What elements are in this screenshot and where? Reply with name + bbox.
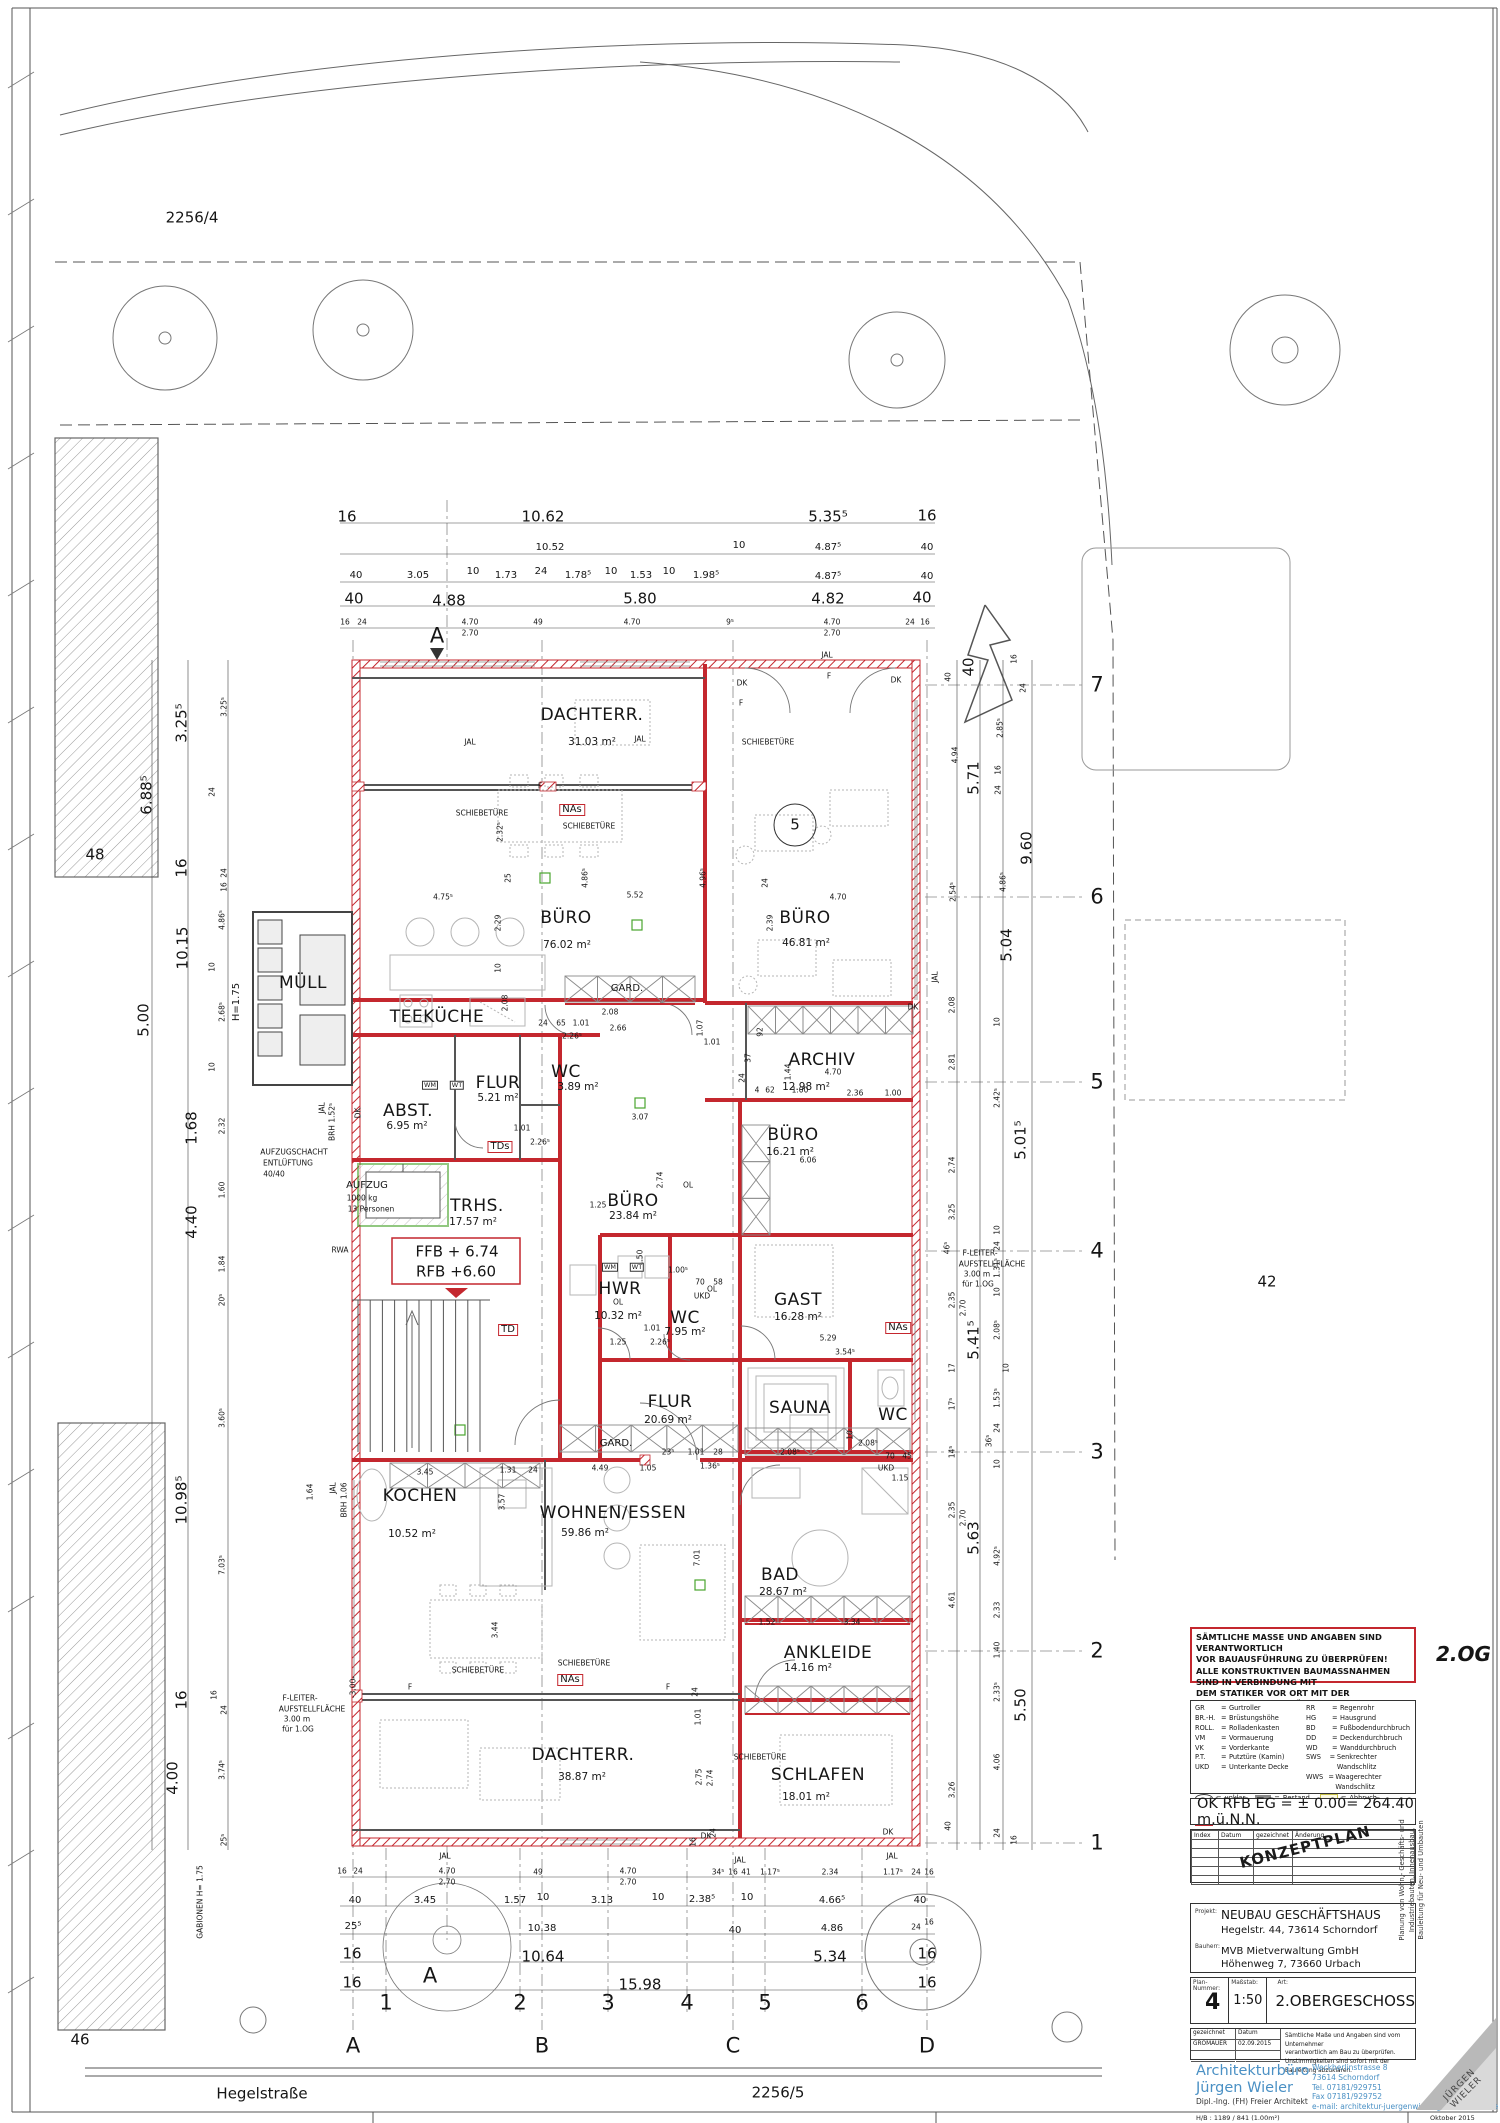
- room-name: SAUNA: [769, 1398, 831, 1418]
- dimension-label: 1.01: [694, 1709, 702, 1726]
- dimension-label: 2.08: [948, 997, 956, 1014]
- dimension-label: 10: [993, 1017, 1001, 1027]
- dimension-label: 40: [344, 592, 363, 607]
- dimension-label: 3.60⁵: [218, 1408, 226, 1428]
- component-tag: F: [739, 699, 743, 707]
- grid-number: 5: [758, 1993, 771, 2014]
- dimension-label: 4.06: [993, 1754, 1001, 1771]
- room-name: BÜRO: [767, 1125, 818, 1145]
- legend-value: Wanddurchbruch: [1340, 1744, 1396, 1754]
- room-area: 12.98 m²: [782, 1081, 830, 1093]
- legend-key: WWS: [1306, 1773, 1328, 1793]
- dimension-label: 10: [652, 1893, 665, 1903]
- dimension-label: 1.00: [885, 1089, 902, 1097]
- legend-key: GR: [1195, 1704, 1221, 1714]
- plan-annotation: GARD.: [611, 984, 643, 994]
- room-area: 59.86 m²: [561, 1527, 609, 1539]
- dimension-label: 2.75: [695, 1769, 703, 1786]
- dimension-label: 4.70: [620, 1867, 637, 1875]
- plan-annotation: TDs: [487, 1141, 512, 1153]
- project-box: Projekt: NEUBAU GESCHÄFTSHAUS Hegelstr. …: [1190, 1903, 1416, 1973]
- dimension-label: 70: [885, 1452, 895, 1460]
- legend-box: GR=GurtrollerBR.-H.=BrüstungshöheROLL.=R…: [1190, 1700, 1416, 1794]
- dimension-label: 5.00: [137, 1003, 152, 1036]
- dimension-label: 24: [220, 868, 228, 878]
- grid-number: 3: [1090, 1442, 1103, 1463]
- client-name: MVB Mietverwaltung GmbH: [1221, 1945, 1409, 1958]
- dimension-label: 3.74⁵: [218, 1760, 226, 1780]
- dimension-label: 16: [342, 1947, 361, 1962]
- dimension-label: 16: [917, 1947, 936, 1962]
- plan-number: 4: [1205, 1990, 1220, 2015]
- dimension-label: 4.00: [166, 1761, 181, 1794]
- revision-header: Index: [1192, 1831, 1219, 1840]
- plan-annotation: A: [430, 626, 444, 647]
- room-name: MÜLL: [279, 973, 327, 993]
- dimension-label: 2.08⁵: [858, 1439, 878, 1447]
- dimension-label: 3.34: [844, 1618, 861, 1626]
- drawn-note: verantwortlich am Bau zu überprüfen.: [1285, 2049, 1411, 2058]
- dimension-label: 4.70: [830, 893, 847, 901]
- dimension-label: 24: [691, 1687, 699, 1697]
- dimension-label: 10.38: [528, 1924, 557, 1934]
- component-tag: JAL: [886, 1852, 897, 1860]
- legend-key: RR: [1306, 1704, 1332, 1714]
- dimension-label: 10.98⁵: [175, 1476, 190, 1525]
- room-area: 14.16 m²: [784, 1662, 832, 1674]
- type-label: Art:: [1277, 1980, 1288, 1986]
- legend-key: HG: [1306, 1714, 1332, 1724]
- room-name: WC: [551, 1062, 581, 1082]
- dimension-label: 2.35: [948, 1292, 956, 1309]
- dimension-label: 2.85⁵: [996, 718, 1004, 738]
- project-name: NEUBAU GESCHÄFTSHAUS: [1221, 1908, 1409, 1924]
- dimension-label: 41: [741, 1868, 751, 1876]
- dimension-label: 1.25: [610, 1338, 627, 1346]
- dimension-label: 49: [533, 618, 543, 626]
- component-tag: DK: [883, 1828, 894, 1836]
- plan-annotation: RFB +6.60: [416, 1265, 496, 1280]
- dimension-label: 4.88: [432, 594, 465, 609]
- dimension-label: UKD: [694, 1292, 710, 1300]
- legend-key: DD: [1306, 1734, 1332, 1744]
- dimension-label: 9⁵: [726, 618, 734, 626]
- muell-annex: [253, 912, 352, 1085]
- dimension-label: 24: [993, 1423, 1001, 1433]
- grid-number: 6: [1090, 887, 1103, 908]
- dimension-label: 24: [528, 1466, 538, 1474]
- dimension-label: 1.60: [218, 1182, 226, 1199]
- dimension-label: 24: [911, 1923, 921, 1931]
- project-label: Projekt:: [1195, 1909, 1217, 1917]
- drawn-note: Sämtliche Maße und Angaben sind vom Unte…: [1285, 2032, 1411, 2049]
- dimension-label: 2.74: [706, 1770, 714, 1787]
- component-tag: F: [538, 782, 542, 790]
- drawn-box: gezeichnet GROMAUER Datum 02.09.2015 Säm…: [1190, 2028, 1416, 2060]
- dimension-label: 2.08: [602, 1008, 619, 1016]
- dimension-label: 16: [689, 1837, 697, 1847]
- room-name: FLUR: [648, 1392, 693, 1412]
- dimension-label: 16: [994, 765, 1002, 775]
- dimension-label: 10.62: [522, 510, 565, 525]
- dimension-label: 2.81: [948, 1054, 956, 1071]
- room-area: 46.81 m²: [782, 937, 830, 949]
- dimension-label: 3.05: [407, 571, 429, 581]
- dimension-label: 1.68: [185, 1111, 200, 1144]
- dimension-label: 24: [738, 1073, 746, 1083]
- dimension-label: 40: [921, 543, 934, 553]
- plan-annotation: SCHIEBETÜRE: [563, 822, 616, 830]
- dimension-label: 5.04: [1000, 928, 1015, 961]
- dimension-label: 24: [353, 1867, 363, 1875]
- door-arcs: [455, 668, 895, 1700]
- plan-annotation: SCHIEBETÜRE: [456, 809, 509, 817]
- dimension-label: 4.96⁵: [699, 868, 707, 888]
- dimension-label: 16: [1010, 1835, 1018, 1845]
- plan-annotation: A: [423, 1966, 437, 1987]
- dimension-label: 10.64: [522, 1950, 565, 1965]
- dimension-label: 4.70: [824, 618, 841, 626]
- component-tag: WT: [630, 1263, 644, 1272]
- legend-key: VK: [1195, 1744, 1221, 1754]
- notice-line: SÄMTLICHE MASSE UND ANGABEN SIND VERANTW…: [1196, 1632, 1410, 1654]
- dimension-label: 2.36: [847, 1089, 864, 1097]
- dimension-label: 40: [912, 591, 931, 606]
- room-name: ANKLEIDE: [784, 1643, 873, 1663]
- legend-key: SWS: [1306, 1753, 1330, 1773]
- legend-value: Fußbodendurchbruch: [1340, 1724, 1410, 1734]
- dimension-label: 5.71: [967, 761, 982, 794]
- plan-annotation: AUFSTELLFLÄCHE: [279, 1705, 346, 1713]
- plan-annotation: für 1.OG: [962, 1280, 994, 1288]
- dimension-label: 4.66⁵: [819, 1896, 845, 1906]
- dimension-label: OL: [707, 1285, 717, 1293]
- dimension-label: 24: [911, 1868, 921, 1876]
- room-name: ARCHIV: [789, 1050, 856, 1070]
- plan-annotation: F-LEITER-: [282, 1694, 317, 1702]
- floor-plan-sheet: 1610.625.35⁵1610.52104.87⁵40403.05101.73…: [0, 0, 1500, 2123]
- dimension-label: 10: [733, 541, 746, 551]
- dimension-label: UKD: [878, 1464, 894, 1472]
- dimension-label: 1.53⁵: [993, 1388, 1001, 1408]
- dimension-label: 5.29: [820, 1334, 837, 1342]
- dimension-label: 3.45: [414, 1896, 436, 1906]
- dimension-label: 3.25⁵: [175, 703, 190, 742]
- component-tag: DK: [354, 1108, 362, 1119]
- dimension-label: 2.74: [656, 1172, 664, 1189]
- room-area: 7.95 m²: [664, 1326, 705, 1338]
- dimension-label: 2.34: [822, 1868, 839, 1876]
- dimension-label: 1.17⁵: [760, 1868, 780, 1876]
- dimension-label: 3.07: [632, 1113, 649, 1121]
- dimension-label: 2.66: [610, 1024, 627, 1032]
- legend-key: UKD: [1195, 1763, 1221, 1773]
- plan-annotation: ENTLÜFTUNG: [263, 1159, 313, 1167]
- grid-number: 4: [680, 1993, 693, 2014]
- legend-value: Waagerechter Wandschlitz: [1335, 1773, 1411, 1793]
- dimension-label: 4.61: [948, 1592, 956, 1609]
- plan-meta-box: Plan-Nummer: 4 Maßstab: 1:50 Art: 2.OBER…: [1190, 1977, 1416, 2024]
- dimension-label: 3.44: [491, 1622, 499, 1639]
- dimension-label: 1.98⁵: [693, 571, 719, 581]
- dimension-label: 40: [350, 571, 363, 581]
- legend-value: Senkrechter Wandschlitz: [1337, 1753, 1411, 1773]
- grid-letter: C: [726, 2036, 741, 2057]
- room-name: TEEKÜCHE: [390, 1007, 484, 1027]
- dimension-label: 5.80: [623, 592, 656, 607]
- plan-annotation: 48: [85, 848, 104, 863]
- component-tag: WT: [450, 1081, 464, 1090]
- plan-annotation: GABIONEN H= 1.75: [196, 1865, 204, 1939]
- dimension-label: 2.08: [501, 995, 509, 1012]
- legend-value: Brüstungshöhe: [1229, 1714, 1279, 1724]
- component-tag: JAL: [464, 738, 475, 746]
- dimension-label: 40: [944, 1821, 952, 1831]
- grid-letter: D: [919, 2036, 935, 2057]
- grid-number: 6: [855, 1993, 868, 2014]
- grid-letter: B: [535, 2036, 549, 2057]
- plan-annotation: AUFZUG: [346, 1181, 388, 1191]
- dimension-label: 1.01: [514, 1124, 531, 1132]
- dimension-label: 2.32⁵: [496, 822, 504, 842]
- room-area: 38.87 m²: [558, 1771, 606, 1783]
- stairs: [352, 1300, 490, 1452]
- plan-annotation: 3.00 m: [284, 1715, 310, 1723]
- dimension-label: 16: [210, 1690, 218, 1700]
- dimension-label: 45: [902, 1452, 912, 1460]
- office-services-line: Industriebauten, Innenausbau,: [1408, 1805, 1418, 1955]
- dimension-label: 40: [944, 672, 952, 682]
- project-address: Hegelstr. 44, 73614 Schorndorf: [1221, 1924, 1409, 1937]
- room-name: KOCHEN: [383, 1486, 458, 1506]
- dimension-label: 2.42⁵: [993, 1088, 1001, 1108]
- plan-annotation: TD: [498, 1324, 518, 1336]
- format-note: H/B : 1189 / 841 (1.00m²): [1196, 2114, 1280, 2122]
- dimension-label: 4: [755, 1086, 760, 1094]
- dimension-label: 1.07: [696, 1020, 704, 1037]
- component-tag: JAL: [931, 971, 939, 982]
- dimension-label: 16: [920, 618, 930, 626]
- component-tag: WM: [602, 1263, 618, 1272]
- dimension-label: 24: [905, 618, 915, 626]
- room-area: 10.52 m²: [388, 1528, 436, 1540]
- dimension-label: 17⁵: [948, 1398, 956, 1411]
- dimension-label: 16: [728, 1868, 738, 1876]
- revision-header: gezeichnet: [1254, 1831, 1293, 1840]
- component-tag: DK: [891, 676, 902, 684]
- dimension-label: 16: [340, 618, 350, 626]
- dimension-label: 4.70: [624, 618, 641, 626]
- client-address: Höhenweg 7, 73660 Urbach: [1221, 1958, 1409, 1971]
- plan-annotation: AUFSTELLFLÄCHE: [959, 1260, 1026, 1268]
- dimension-label: 9.60: [1020, 831, 1035, 864]
- plan-annotation: GARD.: [600, 1439, 632, 1449]
- dimension-label: 1.17⁵: [883, 1868, 903, 1876]
- plan-annotation: 40/40: [263, 1170, 285, 1178]
- room-name: BAD: [761, 1565, 799, 1585]
- room-area: 18.01 m²: [782, 1791, 830, 1803]
- dimension-label: 4.70: [439, 1867, 456, 1875]
- dimension-label: 10.15: [176, 927, 191, 970]
- room-name: HWR: [599, 1279, 642, 1299]
- dimension-label: 10: [993, 1225, 1001, 1235]
- dimension-label: 16: [1010, 654, 1018, 664]
- legend-key: ROLL.: [1195, 1724, 1221, 1734]
- legend-key: BD: [1306, 1724, 1332, 1734]
- room-name: TRHS.: [450, 1196, 504, 1216]
- dimension-label: 16: [342, 1976, 361, 1991]
- plan-annotation: Hegelstraße: [216, 2087, 307, 2102]
- dimension-label: OL: [683, 1181, 693, 1189]
- component-tag: WM: [422, 1081, 438, 1090]
- component-tag: JAL: [439, 1852, 450, 1860]
- dimension-label: 1.31: [500, 1466, 517, 1474]
- legend-value: Hausgrund: [1340, 1714, 1376, 1724]
- room-area: 3.89 m²: [557, 1081, 598, 1093]
- dimension-label: 2.26⁵: [530, 1138, 550, 1146]
- dimension-label: 2.32: [218, 1118, 226, 1135]
- dimension-label: 24: [761, 878, 769, 888]
- drawn-by: GROMAUER: [1191, 2040, 1235, 2051]
- dimension-label: 5.35⁵: [808, 510, 847, 525]
- grid-number: 1: [379, 1993, 392, 2014]
- plan-annotation: NAs: [885, 1322, 911, 1334]
- dimension-label: 3.26: [948, 1782, 956, 1799]
- scale-label: Maßstab:: [1231, 1980, 1258, 1986]
- dimension-label: 2.39: [766, 915, 774, 932]
- plan-annotation: 13 Personen: [348, 1205, 395, 1213]
- dimension-label: 24: [220, 1705, 228, 1715]
- plan-annotation: RWA: [331, 1246, 348, 1254]
- dimension-label: 1.25: [590, 1201, 607, 1209]
- dimension-label: 10: [208, 962, 216, 972]
- room-name: DACHTERR.: [541, 705, 644, 725]
- office-services-line: Bauleitung für Neu- und Umbauten: [1417, 1805, 1427, 1955]
- dimension-label: 1.01: [573, 1019, 590, 1027]
- room-area: 76.02 m²: [543, 939, 591, 951]
- notice-line: VOR BAUAUSFÜHRUNG ZU ÜBERPRÜFEN!: [1196, 1654, 1410, 1665]
- legend-value: Gurtroller: [1229, 1704, 1261, 1714]
- drawn-date: 02.09.2015: [1236, 2040, 1280, 2051]
- dimension-label: 5.34: [813, 1950, 846, 1965]
- dimension-label: 92: [756, 1027, 764, 1037]
- plan-annotation: SCHIEBETÜRE: [734, 1753, 787, 1761]
- plan-annotation: NAs: [559, 804, 585, 816]
- dimension-label: 1.64: [306, 1484, 314, 1501]
- dimension-label: 1.40: [993, 1642, 1001, 1659]
- component-tag: JAL: [318, 1102, 326, 1113]
- dimension-label: 34⁵: [712, 1868, 725, 1876]
- notice-line: ALLE KONSTRUKTIVEN BAUMASSNAHMEN SIND IN…: [1196, 1666, 1410, 1688]
- dimension-label: 1.01: [644, 1324, 661, 1332]
- dimension-label: 16: [337, 1867, 347, 1875]
- room-area: 28.67 m²: [759, 1586, 807, 1598]
- dimension-label: 5.50: [1014, 1688, 1029, 1721]
- grid-number: 1: [1090, 1833, 1103, 1854]
- dimension-label: 2.74: [948, 1157, 956, 1174]
- dimension-label: 5.63: [967, 1521, 982, 1554]
- dimension-label: 4.70: [462, 618, 479, 626]
- dimension-label: 28: [713, 1448, 723, 1456]
- dimension-label: 3.54⁵: [835, 1348, 855, 1356]
- dimension-label: 4.49: [592, 1464, 609, 1472]
- dimension-label: 10: [663, 567, 676, 577]
- dimension-label: 10.52: [536, 543, 565, 553]
- room-area: 10.32 m²: [594, 1310, 642, 1322]
- dimension-label: 2.54⁵: [949, 882, 957, 902]
- legend-value: Putztüre (Kamin): [1229, 1753, 1284, 1763]
- dimension-label: 10: [993, 1459, 1001, 1469]
- dimension-label: 2.70: [959, 1300, 967, 1317]
- dimension-label: 20⁵: [218, 1294, 226, 1307]
- component-tag: DK: [908, 1003, 919, 1011]
- notice-box: SÄMTLICHE MASSE UND ANGABEN SIND VERANTW…: [1190, 1627, 1416, 1683]
- dimension-label: 10: [605, 567, 618, 577]
- component-tag: BRH 1.52⁵: [328, 1103, 336, 1141]
- scale-value: 1:50: [1233, 1993, 1262, 2008]
- grid-number: 5: [1090, 1072, 1103, 1093]
- dimension-label: 62: [765, 1086, 775, 1094]
- legend-key: P.T.: [1195, 1753, 1221, 1763]
- date-label: Datum: [1236, 2029, 1280, 2040]
- dimension-label: 40: [962, 657, 977, 676]
- plan-annotation: 3.00 m: [964, 1270, 990, 1278]
- dimension-label: 25⁵: [220, 1834, 228, 1847]
- legend-value: Regenrohr: [1340, 1704, 1374, 1714]
- component-tag: JAL: [634, 735, 645, 743]
- office-services: Planung von Wohn,- Geschäfts- und Indust…: [1398, 1805, 1427, 1955]
- dimension-label: 2.70: [462, 629, 479, 637]
- dimension-label: 10: [993, 1287, 1001, 1297]
- room-area: 16.21 m²: [766, 1146, 814, 1158]
- dimension-label: 40: [914, 1896, 927, 1906]
- dimension-label: 3.25⁵: [220, 697, 228, 717]
- stage-label: 2.OG: [1436, 1642, 1491, 1666]
- dimension-label: 2.70: [439, 1878, 456, 1886]
- dimension-label: 23⁵: [662, 1448, 675, 1456]
- date-note: Oktober 2015: [1430, 2114, 1475, 2122]
- dimension-label: 1.01: [688, 1448, 705, 1456]
- dimension-label: 24: [993, 1828, 1001, 1838]
- grid-letter: A: [346, 2036, 360, 2057]
- room-name: WC: [878, 1405, 908, 1425]
- component-tag: BRH 1.06: [340, 1482, 348, 1517]
- dimension-label: 10: [846, 1430, 854, 1440]
- room-name: DACHTERR.: [532, 1745, 635, 1765]
- dimension-label: 4.86⁵: [581, 868, 589, 888]
- plan-annotation: SCHIEBETÜRE: [742, 738, 795, 746]
- revision-header: Datum: [1219, 1831, 1254, 1840]
- legend-value: Vorderkante: [1229, 1744, 1269, 1754]
- dimension-label: 70: [695, 1278, 705, 1286]
- stairs-arrow: [406, 1311, 418, 1448]
- plan-annotation: 2256/5: [752, 2086, 805, 2101]
- dimension-label: 16: [924, 1918, 934, 1926]
- component-tag: DK: [737, 679, 748, 687]
- dimension-label: 4.86: [821, 1924, 843, 1934]
- dimension-label: 37: [744, 1053, 752, 1063]
- dimension-label: OL: [613, 1298, 623, 1306]
- dimension-label: 5.41⁵: [967, 1320, 982, 1359]
- dimension-label: 1.05: [640, 1464, 657, 1472]
- plan-annotation: für 1.OG: [282, 1725, 314, 1733]
- dimension-label: 14⁵: [948, 1446, 956, 1459]
- dimension-label: 4.75⁵: [433, 893, 453, 901]
- dimension-label: 4.86⁵: [999, 872, 1007, 892]
- office-services-line: Planung von Wohn,- Geschäfts- und: [1398, 1805, 1408, 1955]
- dimension-label: 4.87⁵: [815, 572, 841, 582]
- dimension-label: 1.01: [704, 1038, 721, 1046]
